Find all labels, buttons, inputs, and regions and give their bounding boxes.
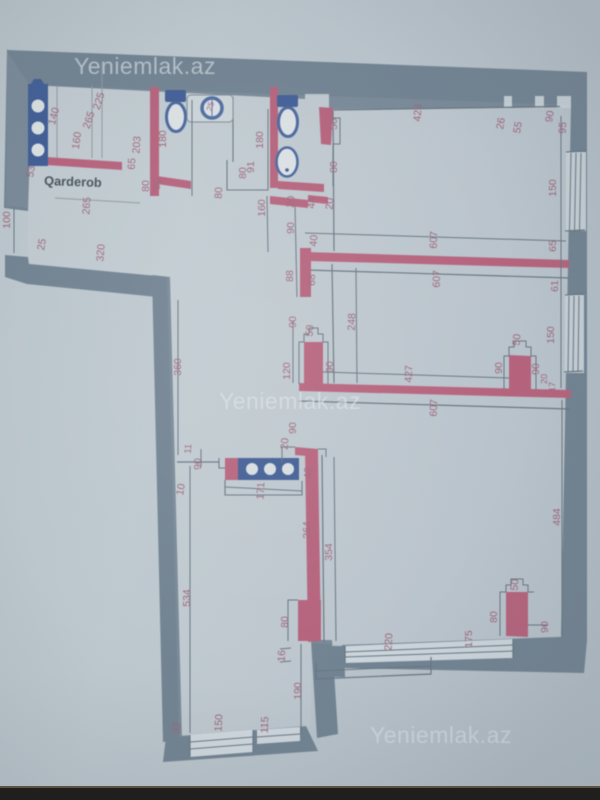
svg-text:171: 171 (255, 482, 268, 500)
svg-text:95: 95 (557, 122, 569, 134)
svg-text:150: 150 (547, 179, 559, 197)
svg-text:150: 150 (213, 714, 226, 732)
svg-text:10: 10 (174, 483, 188, 497)
svg-text:90: 90 (285, 222, 297, 234)
svg-text:20: 20 (324, 197, 337, 210)
svg-text:53: 53 (24, 165, 38, 179)
svg-text:203: 203 (130, 135, 143, 153)
svg-text:220: 220 (383, 633, 396, 651)
svg-text:Qarderob: Qarderob (44, 173, 102, 190)
svg-text:265: 265 (80, 196, 93, 214)
svg-text:160: 160 (70, 131, 84, 150)
svg-text:427: 427 (403, 365, 416, 383)
svg-text:91: 91 (245, 161, 257, 173)
svg-text:90: 90 (543, 110, 557, 124)
svg-text:80: 80 (328, 161, 340, 173)
svg-text:50: 50 (511, 333, 524, 346)
svg-text:360: 360 (172, 358, 184, 376)
svg-text:354: 354 (323, 543, 335, 561)
svg-text:90: 90 (324, 361, 336, 373)
svg-text:120: 120 (281, 362, 293, 380)
svg-text:180: 180 (157, 130, 169, 148)
svg-text:607: 607 (431, 270, 444, 288)
svg-text:26: 26 (494, 117, 508, 131)
svg-text:175: 175 (463, 630, 475, 648)
svg-text:61: 61 (549, 280, 561, 292)
svg-text:80: 80 (151, 178, 163, 190)
svg-text:484: 484 (551, 508, 563, 526)
svg-text:50: 50 (304, 324, 317, 337)
svg-text:65: 65 (547, 240, 559, 252)
svg-text:115: 115 (259, 716, 272, 733)
svg-text:80: 80 (213, 187, 225, 199)
svg-text:90: 90 (192, 458, 204, 470)
svg-text:80: 80 (488, 611, 500, 623)
svg-text:607: 607 (428, 399, 441, 417)
svg-text:320: 320 (94, 243, 107, 261)
svg-text:40: 40 (308, 234, 321, 247)
svg-text:90: 90 (287, 422, 299, 434)
svg-text:180: 180 (254, 131, 266, 149)
svg-text:44: 44 (306, 196, 319, 209)
svg-text:248: 248 (346, 313, 359, 331)
svg-text:32: 32 (171, 721, 184, 734)
svg-text:100: 100 (1, 211, 13, 229)
svg-text:80: 80 (279, 616, 291, 628)
svg-text:46: 46 (302, 467, 314, 479)
svg-text:17: 17 (547, 382, 557, 392)
svg-text:264: 264 (301, 521, 313, 539)
svg-text:90: 90 (539, 621, 551, 633)
svg-text:190: 190 (292, 682, 304, 700)
svg-text:11: 11 (183, 443, 195, 454)
svg-text:68: 68 (306, 274, 318, 286)
svg-text:20: 20 (285, 195, 298, 208)
svg-text:50: 50 (328, 118, 340, 130)
svg-text:160: 160 (256, 199, 268, 217)
svg-text:90: 90 (530, 363, 542, 375)
svg-text:607: 607 (428, 231, 441, 249)
svg-text:16: 16 (276, 650, 288, 662)
svg-text:534: 534 (181, 589, 193, 607)
svg-text:423: 423 (412, 104, 425, 122)
svg-text:55: 55 (511, 121, 525, 135)
svg-text:65: 65 (126, 157, 139, 170)
svg-text:90: 90 (493, 362, 505, 374)
svg-text:50: 50 (509, 578, 522, 591)
svg-text:90: 90 (287, 316, 299, 328)
svg-text:25: 25 (35, 238, 49, 252)
svg-text:150: 150 (545, 326, 557, 344)
svg-text:88: 88 (284, 270, 296, 282)
svg-text:20: 20 (279, 437, 292, 450)
